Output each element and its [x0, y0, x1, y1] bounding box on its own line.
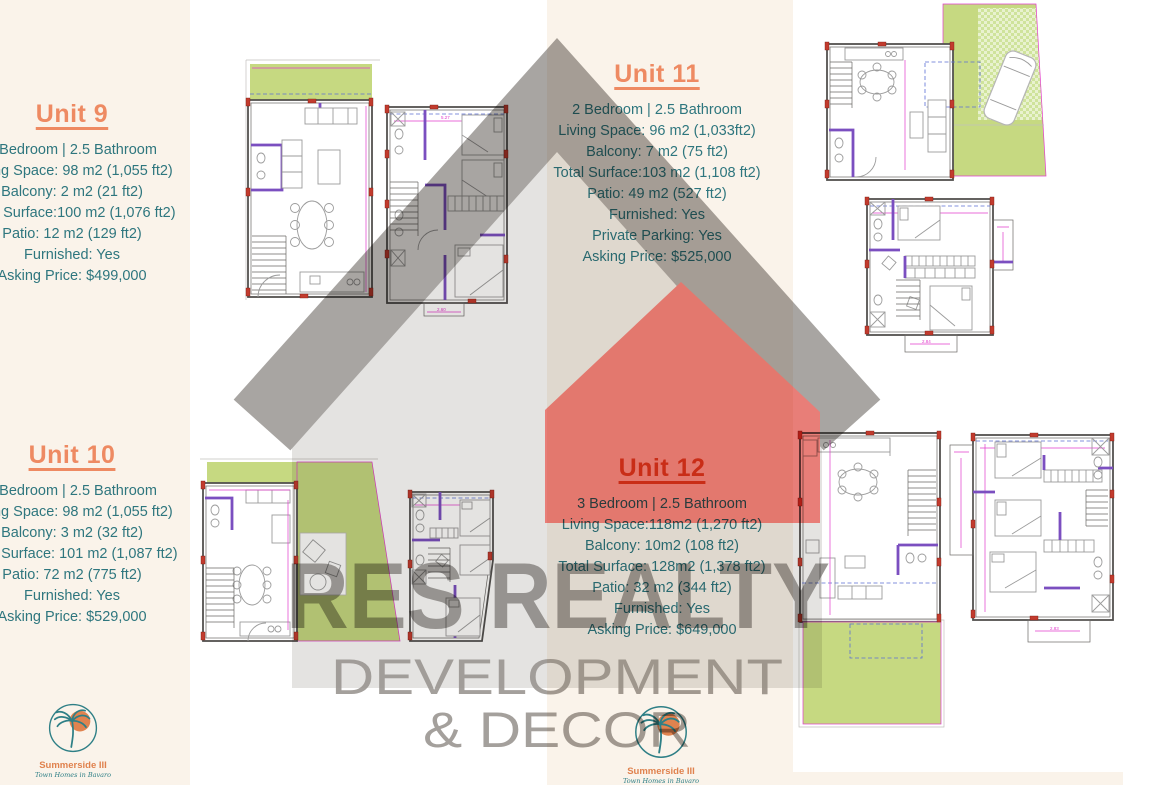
spec-line: 2 Bedroom | 2.5 Bathroom [0, 481, 232, 502]
spec-line: 3 Bedroom | 2.5 Bathroom [502, 494, 822, 515]
spec-line: Living Space:118m2 (1,270 ft2) [502, 515, 822, 536]
spec-line: Total Surface: 128m2 (1,378 ft2) [502, 557, 822, 578]
spec-line: Patio: 32 m2 (344 ft2) [502, 578, 822, 599]
logo-tagline: Town Homes in Bavaro [21, 771, 125, 779]
svg-text:2.60: 2.60 [437, 307, 446, 312]
unit-11-specs: 2 Bedroom | 2.5 BathroomLiving Space: 96… [497, 100, 817, 268]
floor-plan-unit-9-upper: 5.27 2.60 [385, 105, 508, 316]
spec-line: Furnished: Yes [0, 245, 232, 266]
spec-line: Living Space: 98 m2 (1,055 ft2) [0, 502, 232, 523]
spec-line: Balcony: 3 m2 (32 ft2) [0, 523, 232, 544]
spec-line: Balcony: 7 m2 (75 ft2) [497, 142, 817, 163]
unit-12-title: Unit 12 [619, 454, 706, 483]
floor-plan-unit-12-upper: 2.83 [950, 433, 1114, 642]
unit-12-info: Unit 12 3 Bedroom | 2.5 BathroomLiving S… [502, 454, 822, 641]
floor-plan-unit-10-upper [408, 490, 494, 641]
spec-line: Private Parking: Yes [497, 226, 817, 247]
logo-tagline: Town Homes in Bavaro [605, 777, 717, 785]
spec-line: Furnished: Yes [497, 205, 817, 226]
spec-line: Asking Price: $529,000 [0, 607, 232, 628]
spec-line: Asking Price: $499,000 [0, 266, 232, 287]
summerside-logo-2: Summerside III Town Homes in Bavaro [605, 704, 717, 785]
spec-line: Asking Price: $525,000 [497, 247, 817, 268]
brochure-page: { "units": { "u9": { "title": "Unit 9", … [0, 0, 1170, 785]
spec-line: Balcony: 10m2 (108 ft2) [502, 536, 822, 557]
unit-9-title: Unit 9 [36, 100, 108, 129]
unit-10-specs: 2 Bedroom | 2.5 BathroomLiving Space: 98… [0, 481, 232, 628]
spec-line: Balcony: 2 m2 (21 ft2) [0, 182, 232, 203]
spec-line: Patio: 12 m2 (129 ft2) [0, 224, 232, 245]
svg-text:5.27: 5.27 [441, 115, 450, 120]
floor-plan-unit-11-ground [825, 4, 1046, 180]
unit-9-info: Unit 9 2 Bedroom | 2.5 BathroomLiving Sp… [0, 100, 232, 287]
floor-plan-unit-11-upper: 2.84 [865, 197, 1013, 352]
spec-line: Patio: 72 m2 (775 ft2) [0, 565, 232, 586]
spec-line: Furnished: Yes [0, 586, 232, 607]
logo-name: Summerside III [21, 760, 125, 771]
unit-9-specs: 2 Bedroom | 2.5 BathroomLiving Space: 98… [0, 140, 232, 287]
summerside-logo: Summerside III Town Homes in Bavaro [21, 702, 125, 779]
svg-text:2.83: 2.83 [1050, 626, 1059, 631]
spec-line: Total Surface:103 m2 (1,108 ft2) [497, 163, 817, 184]
palm-tree-sun-icon [47, 702, 99, 754]
floor-plan-unit-9-ground [246, 60, 380, 300]
unit-11-info: Unit 11 2 Bedroom | 2.5 BathroomLiving S… [497, 60, 817, 268]
spec-line: 2 Bedroom | 2.5 Bathroom [497, 100, 817, 121]
spec-line: Living Space: 96 m2 (1,033ft2) [497, 121, 817, 142]
unit-10-info: Unit 10 2 Bedroom | 2.5 BathroomLiving S… [0, 441, 232, 628]
spec-line: Total Surface: 101 m2 (1,087 ft2) [0, 544, 232, 565]
spec-line: Total Surface:100 m2 (1,076 ft2) [0, 203, 232, 224]
unit-12-specs: 3 Bedroom | 2.5 BathroomLiving Space:118… [502, 494, 822, 641]
unit-10-title: Unit 10 [29, 441, 116, 470]
svg-text:2.84: 2.84 [922, 339, 931, 344]
spec-line: Furnished: Yes [502, 599, 822, 620]
logo-name: Summerside III [605, 766, 717, 777]
spec-line: Patio: 49 m2 (527 ft2) [497, 184, 817, 205]
spec-line: Asking Price: $649,000 [502, 620, 822, 641]
spec-line: 2 Bedroom | 2.5 Bathroom [0, 140, 232, 161]
unit-11-title: Unit 11 [614, 60, 699, 89]
palm-tree-sun-icon [633, 704, 689, 760]
spec-line: Living Space: 98 m2 (1,055 ft2) [0, 161, 232, 182]
